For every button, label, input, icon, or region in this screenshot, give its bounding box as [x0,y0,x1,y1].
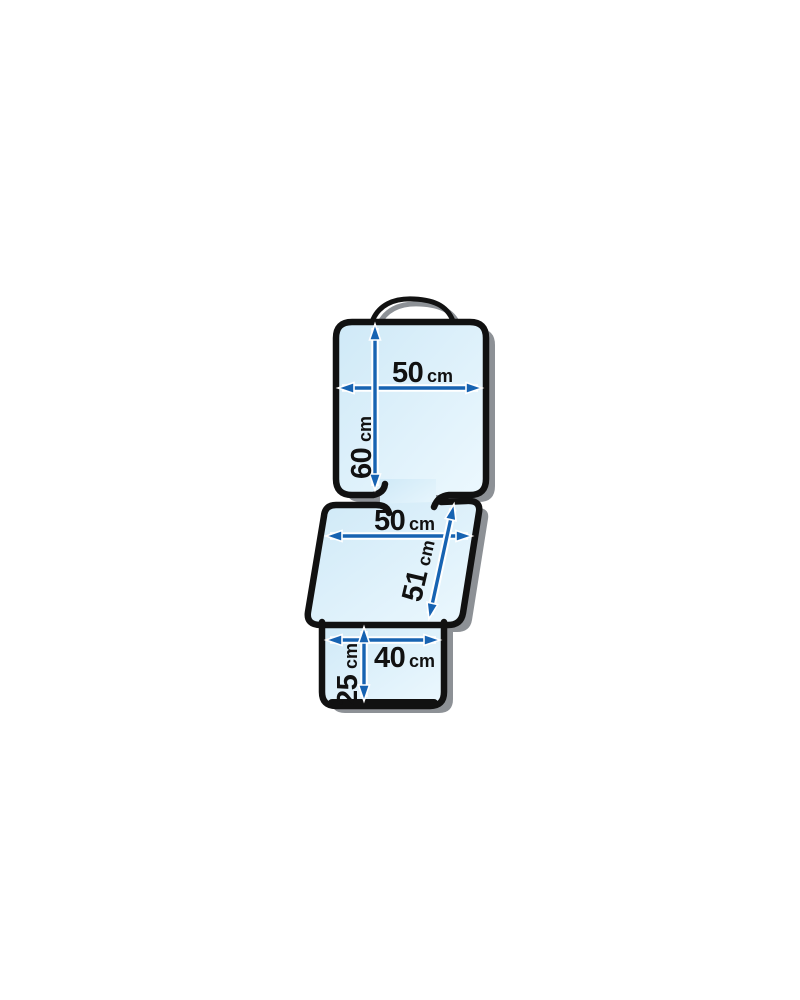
seat-protector-drawing: 50 cm 60 cm 50 cm 51 cm 40 cm 25 cm [0,0,800,1000]
backrest-width-unit: cm [427,366,453,386]
seat-width-value: 50 [374,505,405,537]
flap-width-unit: cm [409,651,435,671]
flap-height-value: 25 [332,674,364,706]
backrest-height-unit: cm [355,416,375,442]
flap-width-value: 40 [374,642,405,674]
backrest-width-value: 50 [392,357,423,389]
flap-height-unit: cm [341,643,361,669]
seat-protector-diagram: 50 cm 60 cm 50 cm 51 cm 40 cm 25 cm [0,0,800,1000]
seat-width-unit: cm [409,514,435,534]
backrest-height-value: 60 [346,448,378,479]
